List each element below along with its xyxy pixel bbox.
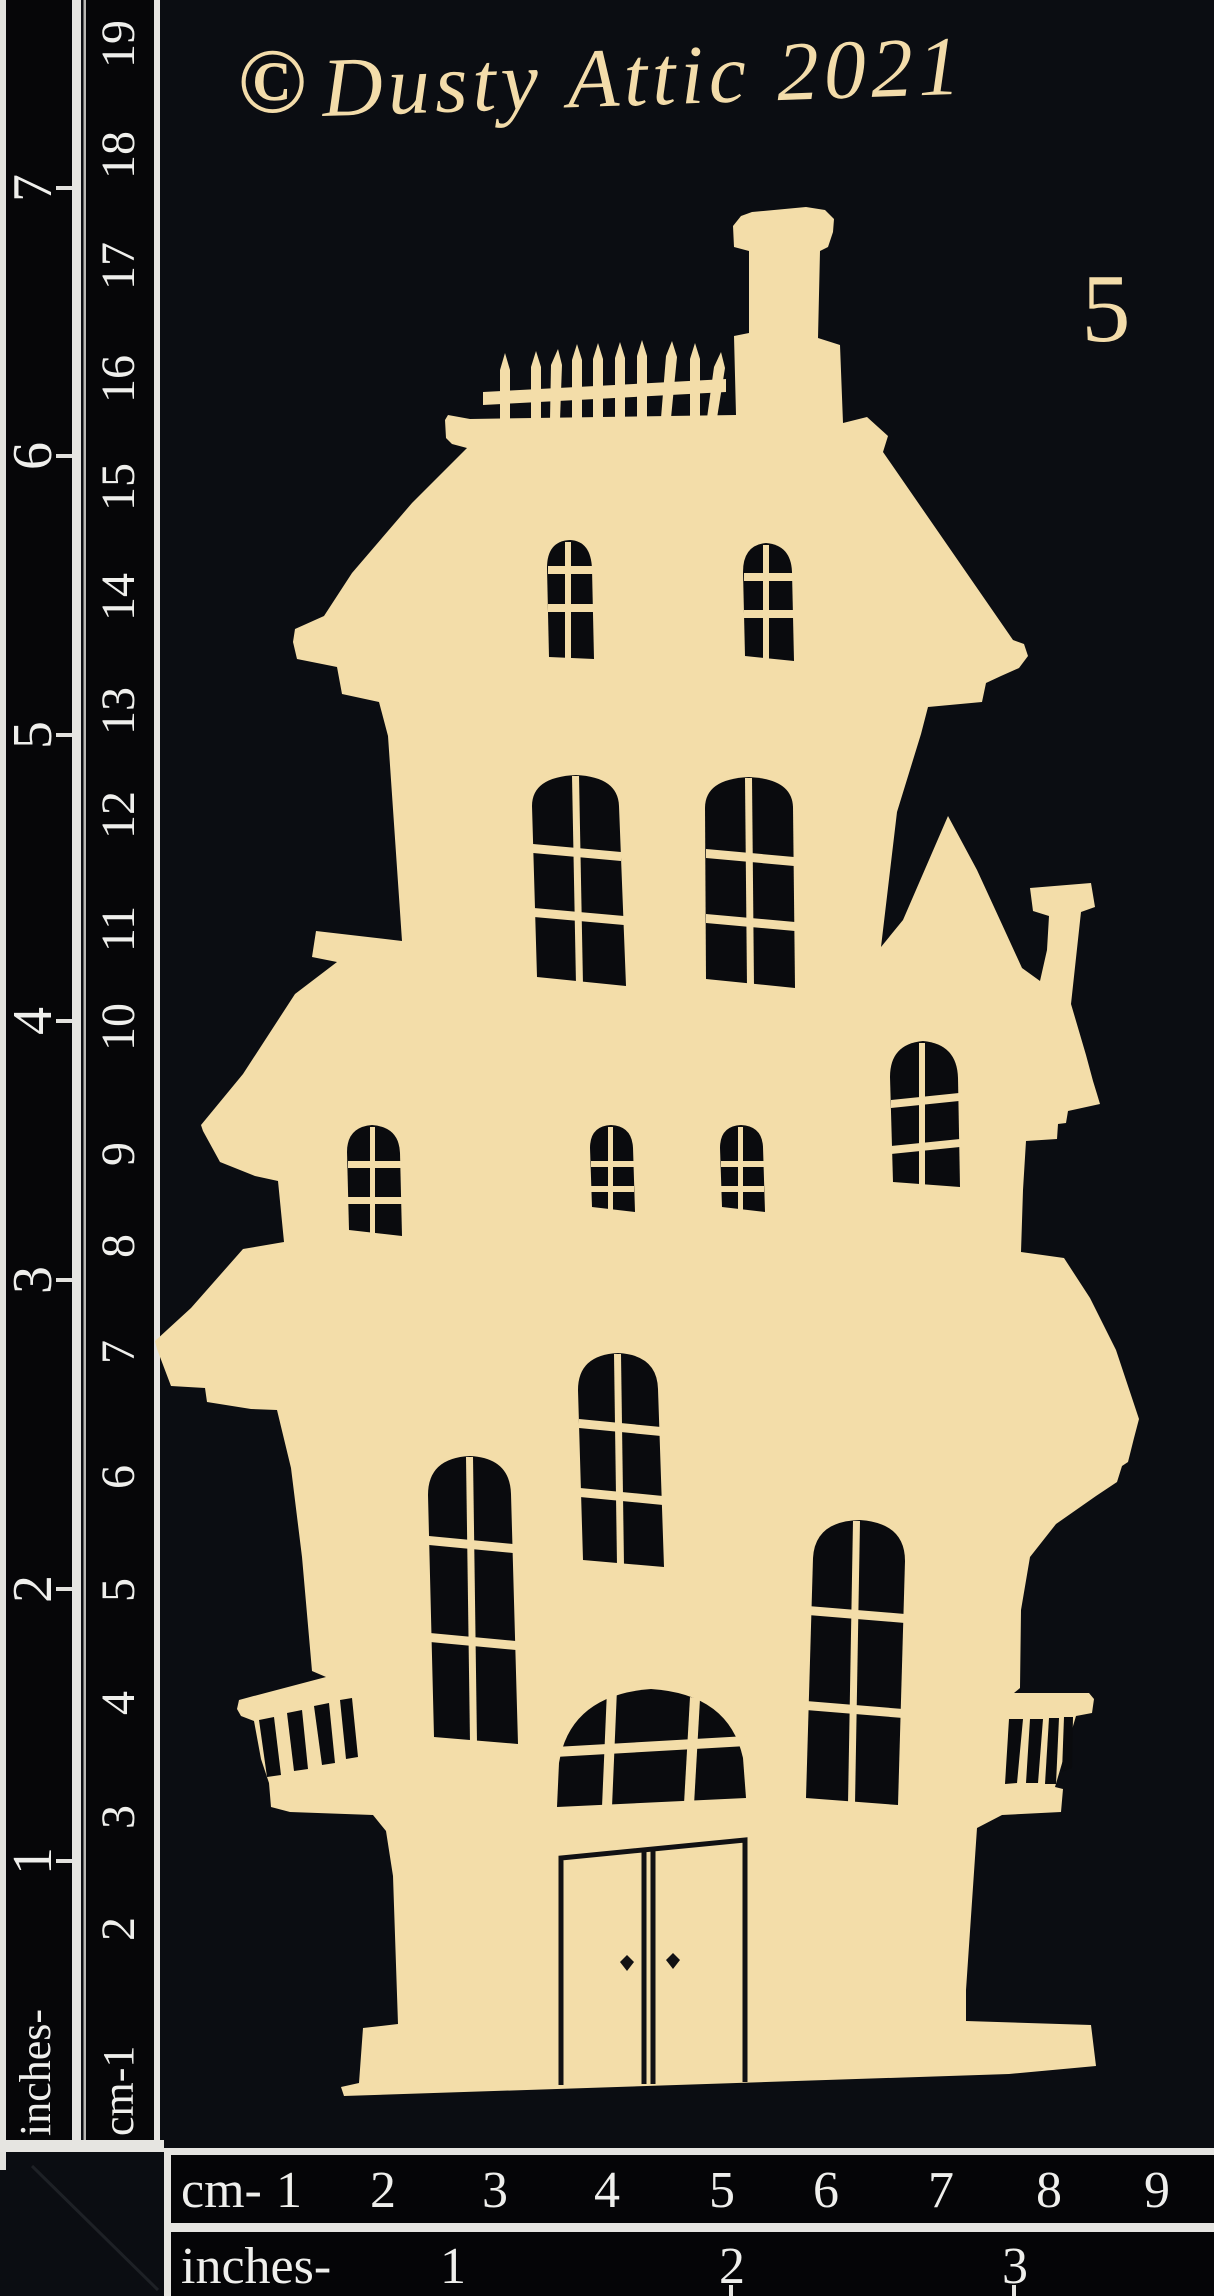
svg-text:4: 4 bbox=[594, 2162, 620, 2219]
svg-text:18: 18 bbox=[92, 131, 145, 179]
svg-text:15: 15 bbox=[92, 463, 145, 511]
svg-text:13: 13 bbox=[92, 687, 145, 735]
svg-text:8: 8 bbox=[92, 1234, 145, 1258]
svg-text:©: © bbox=[238, 30, 307, 132]
svg-text:7: 7 bbox=[928, 2162, 954, 2219]
svg-text:5: 5 bbox=[2, 721, 64, 749]
svg-text:10: 10 bbox=[92, 1003, 145, 1051]
svg-text:3: 3 bbox=[482, 2162, 508, 2219]
svg-text:8: 8 bbox=[1036, 2162, 1062, 2219]
svg-text:6: 6 bbox=[813, 2162, 839, 2219]
svg-text:2: 2 bbox=[92, 1917, 145, 1941]
svg-text:1: 1 bbox=[276, 2162, 302, 2219]
svg-text:4: 4 bbox=[92, 1691, 145, 1715]
svg-text:7: 7 bbox=[2, 174, 64, 202]
svg-text:9: 9 bbox=[1144, 2162, 1170, 2219]
svg-text:3: 3 bbox=[2, 1266, 64, 1294]
svg-text:6: 6 bbox=[92, 1465, 145, 1489]
svg-text:17: 17 bbox=[92, 242, 145, 290]
svg-text:7: 7 bbox=[92, 1340, 145, 1364]
svg-text:16: 16 bbox=[92, 355, 145, 403]
svg-text:inches-: inches- bbox=[11, 2009, 60, 2136]
svg-text:9: 9 bbox=[92, 1142, 145, 1166]
svg-text:11: 11 bbox=[92, 906, 145, 952]
svg-text:5: 5 bbox=[92, 1578, 145, 1602]
svg-text:2: 2 bbox=[370, 2162, 396, 2219]
svg-text:6: 6 bbox=[2, 442, 64, 470]
svg-text:1: 1 bbox=[440, 2238, 466, 2295]
svg-text:cm-1: cm-1 bbox=[94, 2046, 143, 2136]
svg-text:5: 5 bbox=[709, 2162, 735, 2219]
svg-text:cm-: cm- bbox=[181, 2162, 262, 2219]
svg-text:4: 4 bbox=[2, 1007, 64, 1035]
svg-text:3: 3 bbox=[92, 1805, 145, 1829]
svg-text:1: 1 bbox=[2, 1847, 64, 1875]
svg-text:12: 12 bbox=[92, 791, 145, 839]
svg-text:2: 2 bbox=[2, 1575, 64, 1603]
svg-text:5: 5 bbox=[1082, 255, 1131, 363]
svg-text:14: 14 bbox=[92, 573, 145, 621]
svg-text:inches-: inches- bbox=[181, 2238, 331, 2295]
svg-text:19: 19 bbox=[92, 20, 145, 68]
